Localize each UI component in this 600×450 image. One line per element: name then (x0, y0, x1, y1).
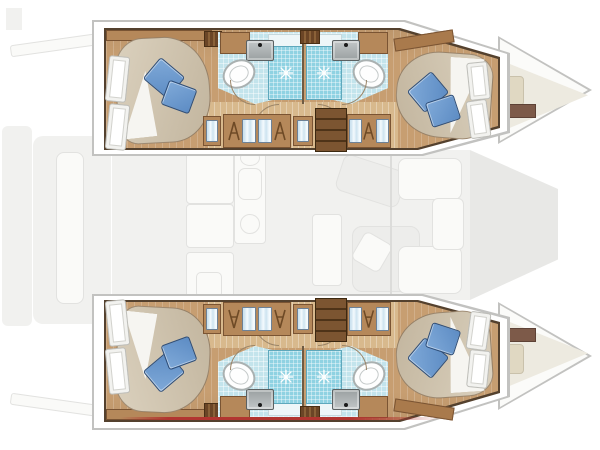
locker-door (258, 119, 272, 143)
hull-port (92, 20, 508, 158)
locker (293, 304, 313, 334)
galley-sink (238, 168, 262, 200)
forward-cockpit-seat (398, 246, 462, 294)
locker-door (297, 308, 309, 330)
forward-headboard-slat (466, 61, 491, 101)
sink (246, 40, 274, 61)
companionway-stairs (315, 298, 347, 342)
companionway-stairs (315, 108, 347, 152)
shower-drain-icon (315, 64, 333, 82)
sink (332, 389, 360, 410)
shower-drain-icon (277, 64, 295, 82)
locker-door (206, 120, 218, 142)
hanger-icon (227, 308, 241, 330)
hanger-icon (362, 120, 375, 142)
hatch-vent-icon (300, 30, 320, 44)
locker-door (258, 307, 272, 331)
hanger-icon (362, 308, 375, 330)
wardrobe (347, 302, 391, 336)
locker-door (242, 307, 256, 331)
hanger-icon (227, 120, 241, 142)
locker-door (206, 308, 218, 330)
locker (203, 304, 221, 334)
galley-cabinet (186, 204, 234, 248)
stern-cleat (6, 8, 22, 30)
hanger-icon (273, 120, 287, 142)
hanger-icon (273, 308, 287, 330)
locker (293, 116, 313, 146)
saloon-bulkhead (390, 152, 392, 298)
wardrobe (347, 114, 391, 148)
vanity-counter (358, 396, 388, 418)
trampoline (470, 150, 558, 300)
locker-door (297, 120, 309, 142)
forward-cockpit-locker (432, 198, 464, 250)
bow-starboard (498, 302, 598, 414)
bow-port (498, 36, 598, 148)
forward-headboard-slat (466, 349, 491, 389)
locker-door (242, 119, 256, 143)
locker-door (349, 307, 362, 331)
sink (332, 40, 360, 61)
locker-door (376, 119, 389, 143)
locker (203, 116, 221, 146)
galley-stove-icon (240, 214, 260, 234)
wardrobe (223, 302, 291, 336)
sink (246, 389, 274, 410)
shower-drain-icon (277, 368, 295, 386)
aft-platform (2, 126, 32, 326)
dinette-table (312, 214, 342, 286)
waterline-stripe (120, 417, 440, 420)
locker-door (349, 119, 362, 143)
galley-counter (186, 150, 234, 204)
forward-cockpit-seat (398, 158, 462, 200)
wardrobe (223, 114, 291, 148)
vanity-counter (358, 32, 388, 54)
shower-drain-icon (315, 368, 333, 386)
floor-plan-canvas (0, 0, 600, 450)
locker-door (376, 307, 389, 331)
cockpit-bench (56, 152, 84, 304)
hull-starboard (92, 292, 508, 430)
